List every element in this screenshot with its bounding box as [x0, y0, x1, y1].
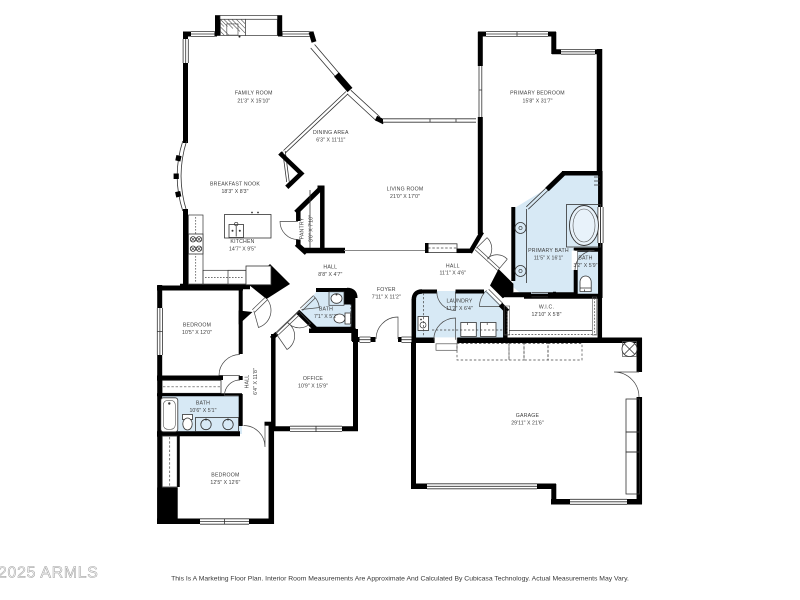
svg-text:LAUNDRY: LAUNDRY	[446, 299, 472, 305]
svg-text:21'3" X 15'10": 21'3" X 15'10"	[237, 98, 270, 104]
svg-text:3'2" X 5'9": 3'2" X 5'9"	[573, 263, 597, 269]
svg-text:21'0" X 17'0": 21'0" X 17'0"	[390, 194, 420, 200]
svg-text:29'11" X 21'6": 29'11" X 21'6"	[511, 421, 544, 427]
svg-text:BATH: BATH	[196, 401, 210, 407]
svg-text:12'5" X 12'6": 12'5" X 12'6"	[210, 480, 240, 486]
svg-text:W.I.C.: W.I.C.	[539, 305, 554, 311]
svg-text:6'3" X 11'11": 6'3" X 11'11"	[316, 138, 345, 144]
svg-text:PANTRY: PANTRY	[300, 217, 306, 239]
svg-text:BATH: BATH	[319, 307, 333, 313]
svg-text:BREAKFAST NOOK: BREAKFAST NOOK	[210, 182, 260, 188]
svg-text:KITCHEN: KITCHEN	[230, 239, 254, 245]
svg-text:2025 ARMLS: 2025 ARMLS	[0, 565, 99, 582]
svg-text:10'6" X 5'1": 10'6" X 5'1"	[189, 408, 216, 414]
svg-text:BEDROOM: BEDROOM	[211, 473, 239, 479]
svg-text:11'2" X 6'4": 11'2" X 6'4"	[446, 306, 473, 312]
svg-text:HALL: HALL	[446, 264, 460, 270]
svg-text:DINING AREA: DINING AREA	[313, 130, 349, 136]
svg-text:7'1" X 5'2": 7'1" X 5'2"	[314, 314, 338, 320]
svg-text:HALL: HALL	[245, 375, 251, 389]
svg-text:LIVING ROOM: LIVING ROOM	[387, 187, 424, 193]
svg-text:PRIMARY BEDROOM: PRIMARY BEDROOM	[510, 91, 565, 97]
svg-text:OFFICE: OFFICE	[303, 376, 324, 382]
svg-text:HALL: HALL	[323, 265, 337, 271]
svg-text:3'0" X 7'10": 3'0" X 7'10"	[309, 215, 315, 242]
svg-text:BEDROOM: BEDROOM	[183, 323, 211, 329]
svg-text:7'11" X 11'2": 7'11" X 11'2"	[372, 295, 401, 301]
svg-text:14'7" X 9'5": 14'7" X 9'5"	[229, 247, 256, 253]
svg-text:This Is A Marketing Floor Plan: This Is A Marketing Floor Plan. Interior…	[171, 576, 629, 583]
svg-text:BATH: BATH	[578, 256, 592, 262]
svg-text:10'5" X 12'0": 10'5" X 12'0"	[182, 330, 212, 336]
svg-text:11'5" X 16'1": 11'5" X 16'1"	[534, 256, 564, 262]
svg-text:6'4" X 11'8": 6'4" X 11'8"	[253, 368, 259, 395]
svg-text:15'8" X 31'7": 15'8" X 31'7"	[523, 98, 553, 104]
svg-text:11'1" X 4'6": 11'1" X 4'6"	[439, 271, 466, 277]
svg-text:GARAGE: GARAGE	[516, 413, 540, 419]
svg-text:FAMILY ROOM: FAMILY ROOM	[235, 91, 273, 97]
svg-text:12'10" X 5'8": 12'10" X 5'8"	[532, 312, 562, 318]
svg-text:FOYER: FOYER	[377, 287, 396, 293]
svg-text:18'3" X 8'3": 18'3" X 8'3"	[221, 189, 248, 195]
svg-text:10'9" X 15'9": 10'9" X 15'9"	[298, 384, 328, 390]
svg-text:8'8" X 4'7": 8'8" X 4'7"	[318, 272, 342, 278]
svg-text:PRIMARY BATH: PRIMARY BATH	[528, 248, 569, 254]
